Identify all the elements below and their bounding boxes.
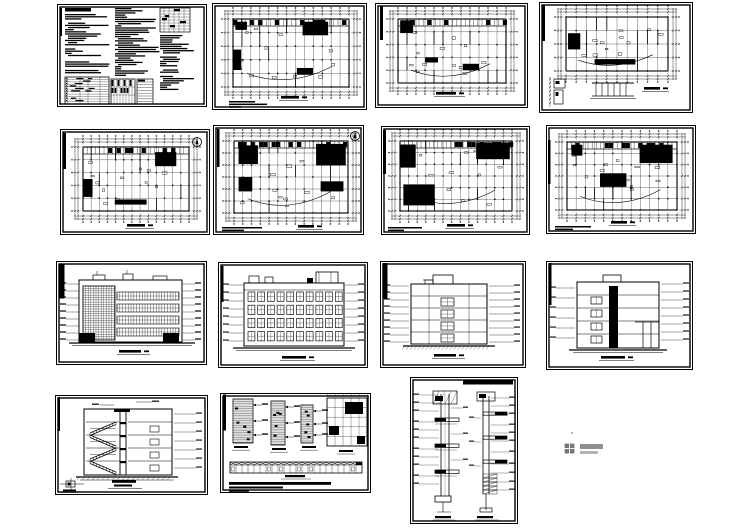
sheet-floor-plan-r1c3 (375, 3, 528, 108)
sheet-drawing (214, 126, 363, 234)
sheet-drawing (547, 262, 692, 369)
watermark-subtitle-bar (580, 451, 598, 454)
sheet-side-elevation (380, 261, 526, 368)
watermark: ❖ (560, 437, 616, 461)
sheet-roof-plan (539, 2, 693, 113)
sheet-wall-sections (410, 377, 518, 524)
sheet-drawing (376, 4, 527, 107)
sheet-front-elevation (56, 261, 207, 365)
sheet-floor-plan-r1c2 (212, 3, 367, 110)
sheet-floor-plan-r2c3 (381, 126, 530, 235)
logo-diamond-icon: ❖ (556, 436, 581, 461)
sheet-drawing (411, 378, 517, 523)
watermark-title-bar (580, 444, 603, 449)
sheet-design-notes (57, 4, 207, 107)
sheet-drawing (219, 263, 367, 367)
sheet-cross-section (546, 261, 693, 370)
sheet-drawing (547, 126, 695, 233)
sheet-stair-section (55, 395, 208, 495)
sheet-drawing (382, 127, 529, 234)
sheet-drawing (56, 396, 207, 494)
sheet-drawing (61, 130, 209, 234)
sheet-detail-sheet (220, 393, 371, 493)
sheet-floor-plan-r2c1 (60, 129, 210, 235)
sheet-drawing (381, 262, 525, 367)
sheet-drawing (540, 3, 692, 112)
watermark-text (580, 444, 603, 454)
sheet-drawing (58, 5, 206, 106)
sheet-drawing (57, 262, 206, 364)
drawing-collage: ❖ (0, 0, 749, 530)
sheet-floor-plan-r2c4 (546, 125, 696, 234)
sheet-floor-plan-r2c2 (213, 125, 364, 235)
sheet-drawing (221, 394, 370, 492)
sheet-rear-elevation (218, 262, 368, 368)
watermark-dot (571, 432, 573, 434)
sheet-drawing (213, 4, 366, 109)
